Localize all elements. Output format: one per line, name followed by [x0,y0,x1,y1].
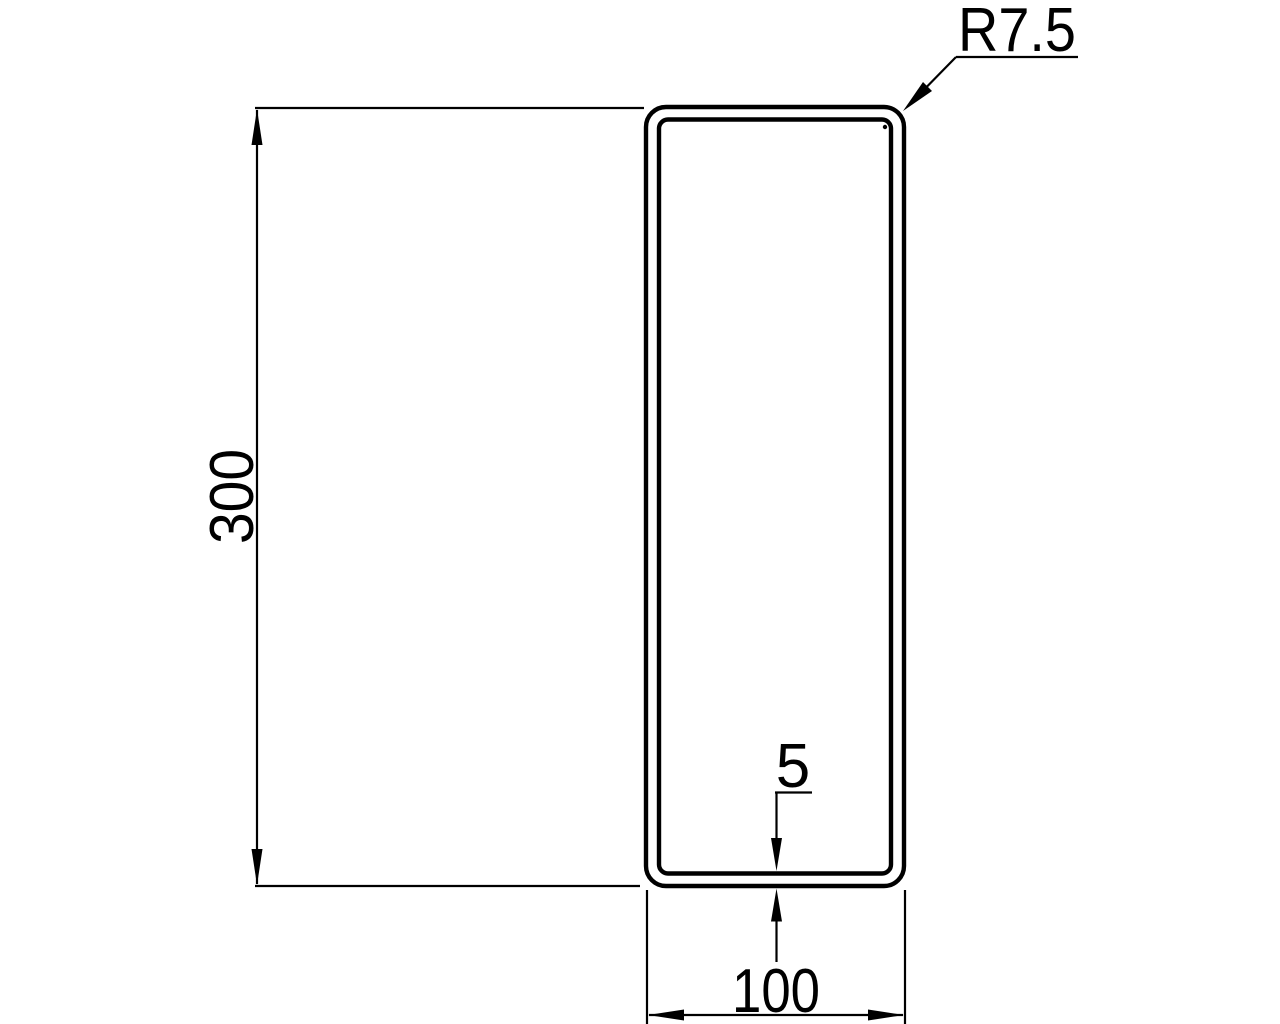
height-arrow-down-icon [252,849,263,885]
width-arrow-right-icon [868,1010,904,1021]
height-dimension: 300 [198,108,644,886]
wall-thickness-arrow-down-icon [771,838,782,871]
width-arrow-left-icon [648,1010,684,1021]
height-dimension-label: 300 [198,449,267,544]
height-arrow-up-icon [252,109,263,145]
width-dimension-label: 100 [732,957,820,1024]
corner-radius-callout: R7.5 [903,0,1078,111]
corner-radius-label: R7.5 [958,0,1076,65]
wall-thickness-label: 5 [776,732,810,801]
technical-drawing: 300 100 5 R7.5 [0,0,1280,1024]
drawing-canvas: 300 100 5 R7.5 [0,0,1280,1024]
wall-thickness-dimension: 5 [771,732,812,962]
corner-radius-center-mark [883,125,887,129]
